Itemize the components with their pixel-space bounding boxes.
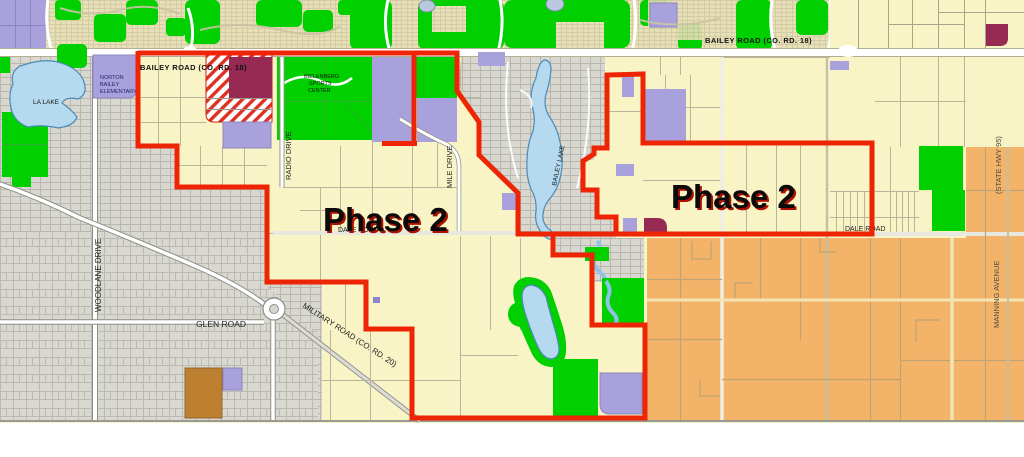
svg-text:BIELENBERG: BIELENBERG: [304, 74, 339, 80]
svg-text:CENTER: CENTER: [308, 88, 331, 94]
svg-text:WOODLANE DRIVE: WOODLANE DRIVE: [94, 239, 103, 312]
svg-text:(STATE HWY 95): (STATE HWY 95): [994, 136, 1003, 194]
svg-text:MILE DRIVE: MILE DRIVE: [445, 145, 454, 188]
svg-text:ELEMENTARY: ELEMENTARY: [100, 89, 137, 95]
svg-text:BAILEY: BAILEY: [100, 82, 120, 88]
svg-text:BAILEY ROAD (CO. RD. 18): BAILEY ROAD (CO. RD. 18): [705, 36, 812, 45]
svg-text:BAILEY ROAD (CO. RD. 18): BAILEY ROAD (CO. RD. 18): [140, 63, 247, 72]
svg-text:RADIO DRIVE: RADIO DRIVE: [284, 131, 293, 180]
svg-text:SPORTS: SPORTS: [309, 81, 332, 87]
svg-text:Phase 2: Phase 2: [323, 201, 448, 238]
svg-text:NORTON: NORTON: [100, 75, 124, 81]
svg-text:GLEN ROAD: GLEN ROAD: [196, 319, 246, 329]
svg-text:MANNING AVENUE: MANNING AVENUE: [992, 261, 1001, 328]
svg-text:LA LAKE: LA LAKE: [33, 99, 60, 106]
svg-text:Phase 2: Phase 2: [671, 178, 796, 215]
